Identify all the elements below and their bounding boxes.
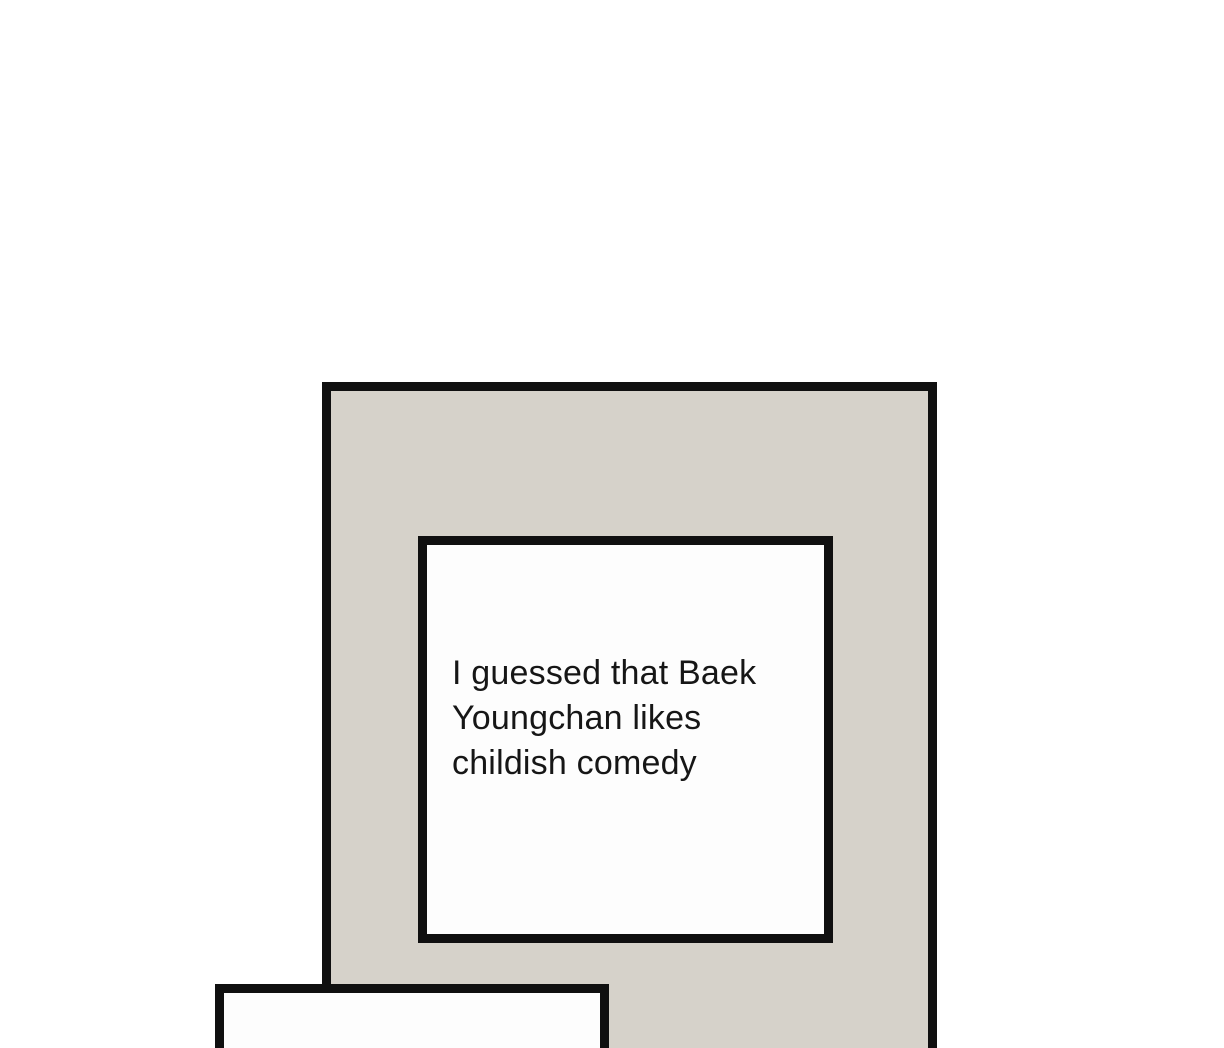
speech-line: childish comedy xyxy=(452,741,806,786)
speech-text: I guessed that Baek Youngchan likes chil… xyxy=(427,545,824,786)
bottom-speech-bubble xyxy=(215,984,609,1048)
comic-page: I guessed that Baek Youngchan likes chil… xyxy=(0,0,1224,1048)
speech-line: I guessed that Baek xyxy=(452,651,806,696)
speech-bubble: I guessed that Baek Youngchan likes chil… xyxy=(418,536,833,943)
speech-line: Youngchan likes xyxy=(452,696,806,741)
